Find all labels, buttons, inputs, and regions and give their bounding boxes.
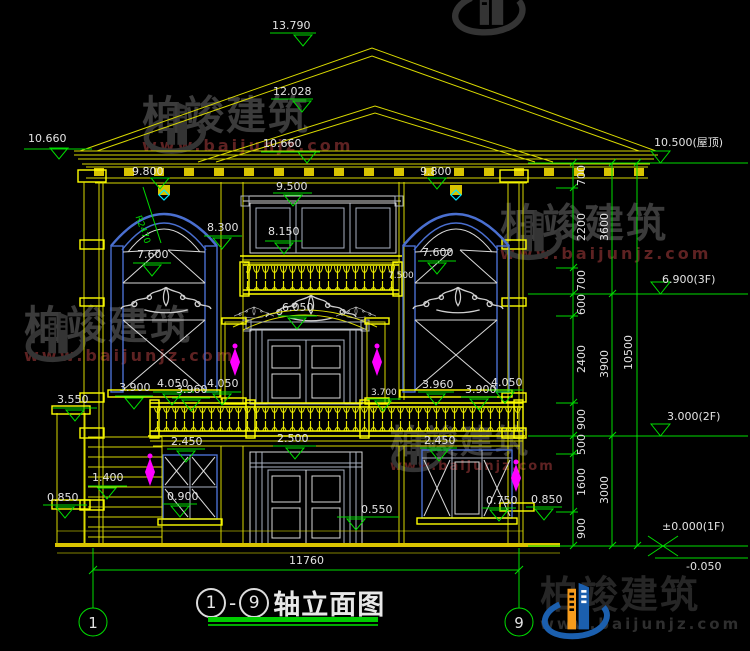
overall-width-dim: 11760 [287,555,326,567]
floor-level-label: -0.050 [686,561,721,573]
level-label: 4.050 [491,377,523,389]
level-label: 9.500 [276,181,308,193]
entry-2f [222,307,389,404]
dim-segment: 3900 [599,350,611,378]
roof-rafter-blocks [94,168,644,176]
level-label: 3.960 [176,384,208,396]
level-label: 7.500 [388,270,414,282]
level-label: 2.450 [171,436,203,448]
dim-segment: 2400 [576,345,588,373]
level-label: 7.600 [137,249,169,261]
level-label: 8.300 [207,222,239,234]
level-label: 9.800 [420,166,452,178]
level-label: 13.790 [272,20,311,32]
level-label: 2.450 [424,435,456,447]
title-axis-start: 1 [196,588,226,618]
dim-segment: 900 [576,518,588,539]
dim-segment: 500 [576,434,588,455]
level-label: 3.550 [57,394,89,406]
floor-level-label: 6.900(3F) [662,274,715,286]
balcony-3f [240,196,403,321]
dim-segment: 3600 [599,213,611,241]
title-axis-end: 9 [239,588,269,618]
level-label: 2.500 [277,433,309,445]
cad-elevation-canvas: 柏竣建筑 www.baijunjz.com 柏竣建筑 www.baijunjz.… [0,0,750,651]
level-label: 3.960 [422,379,454,391]
dim-segment: 10500 [623,335,635,370]
level-label: 3.900 [119,382,151,394]
title-underline-thin [208,624,378,626]
level-label: 0.850 [531,494,563,506]
watermark-bottom-logo: 柏竣建筑 www.baijunjz.com [540,575,741,633]
dim-segment: 3000 [599,476,611,504]
level-label: 0.900 [167,491,199,503]
title-dash: - [229,591,236,615]
level-label: 3.700 [371,387,397,399]
level-label: 0.850 [47,492,79,504]
axis-bubble-right: 9 [514,614,524,632]
level-label: 7.600 [422,247,454,259]
level-label: 1.400 [92,472,124,484]
title-underline [208,617,378,622]
floor-level-label: ±0.000(1F) [662,521,725,533]
arched-window-right [400,185,512,397]
level-label: 4.050 [207,378,239,390]
floor-level-label: 10.500(屋顶) [654,137,723,149]
dim-segment: 700 [576,165,588,186]
axis-bubble-left: 1 [88,614,98,632]
window-1f-right [417,450,517,524]
elevation-drawing: 1 9 [0,0,750,651]
level-label: 9.800 [132,166,164,178]
arched-window-left [108,185,220,397]
dim-segment: 2200 [576,213,588,241]
level-label: 8.150 [268,226,300,238]
dim-segment: 1600 [576,468,588,496]
ground-line [55,531,560,553]
level-label: 12.028 [273,86,312,98]
balcony-2f [148,400,525,446]
level-label: 0.750 [486,495,518,507]
dim-segment: 600 [576,294,588,315]
level-label: 6.050 [282,302,314,314]
level-label: 0.550 [361,504,393,516]
dim-segment: 700 [576,270,588,291]
floor-level-label: 3.000(2F) [667,411,720,423]
baijun-logo-icon [540,575,612,647]
dim-segment: 900 [576,409,588,430]
level-label: 10.660 [263,138,302,150]
level-label: 10.660 [28,133,67,145]
